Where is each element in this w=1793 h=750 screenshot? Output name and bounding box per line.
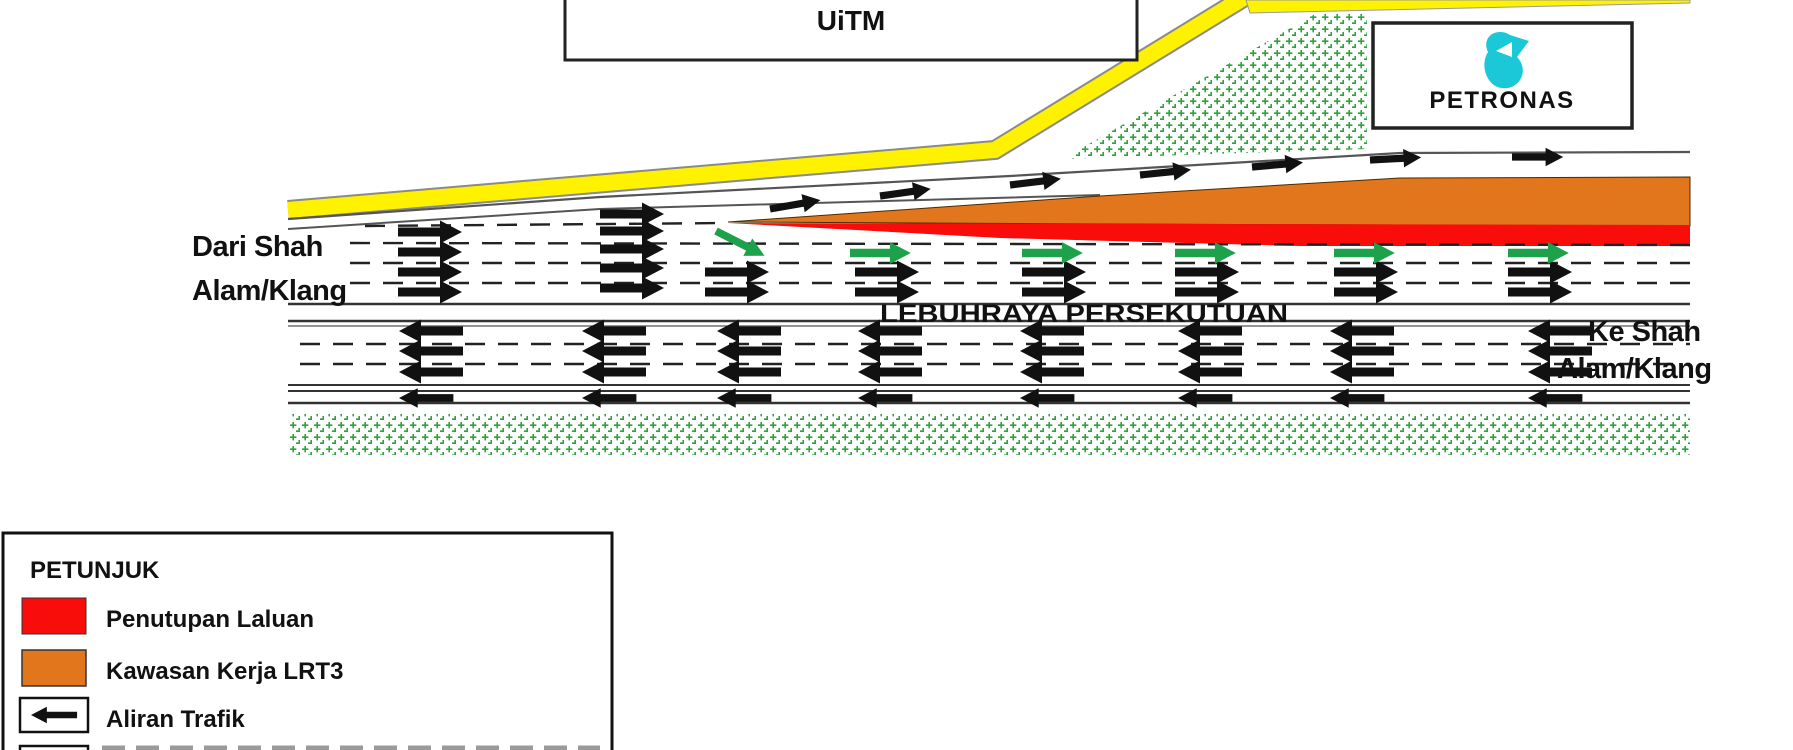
vegetation-area-bottom bbox=[288, 414, 1690, 455]
eastbound-lane-dashes bbox=[288, 243, 1690, 304]
ramp-flow-arrow bbox=[1139, 160, 1192, 184]
legend-swatch-partial bbox=[20, 746, 88, 750]
legend-swatch-workzone bbox=[22, 650, 86, 686]
ramp-flow-arrow bbox=[1370, 148, 1422, 169]
eastbound-flow-arrow bbox=[600, 203, 664, 226]
ramp-flow-arrow bbox=[1251, 153, 1304, 176]
westbound-carriageway bbox=[288, 321, 1690, 403]
petronas-landmark-box: PETRONAS bbox=[1373, 23, 1632, 128]
legend-swatch-closure bbox=[22, 598, 86, 634]
legend-label-workzone: Kawasan Kerja LRT3 bbox=[106, 658, 343, 685]
destination-label-line1: Ke Shah bbox=[1588, 316, 1701, 348]
traffic-management-diagram: UiTM PETRONAS Dari Shah Alam/Klang LEBUH… bbox=[0, 0, 1793, 750]
westbound-flow-arrow bbox=[717, 320, 781, 343]
lane-closure-red bbox=[728, 223, 1690, 246]
ramp-flow-arrow bbox=[1512, 148, 1563, 166]
diagram-canvas: UiTM PETRONAS Dari Shah Alam/Klang LEBUH… bbox=[0, 0, 1793, 750]
eastbound-flow-arrow bbox=[600, 238, 664, 261]
eastbound-flow-arrow bbox=[600, 277, 664, 300]
westbound-flow-arrow bbox=[1330, 320, 1394, 343]
destination-label-line2: Alam/Klang bbox=[1557, 353, 1712, 385]
origin-label-line2: Alam/Klang bbox=[192, 275, 347, 307]
petronas-label: PETRONAS bbox=[1429, 87, 1574, 114]
ramp-flow-arrow bbox=[768, 191, 822, 218]
yellow-road-top-sliver bbox=[1246, 0, 1690, 13]
eastbound-flow-arrow bbox=[398, 221, 462, 244]
uitm-label: UiTM bbox=[817, 5, 885, 36]
legend-title: PETUNJUK bbox=[30, 557, 160, 584]
uitm-landmark-box: UiTM bbox=[565, 0, 1137, 60]
highway-name-label: LEBUHRAYA PERSEKUTUAN bbox=[880, 300, 1288, 328]
westbound-flow-arrow bbox=[582, 320, 646, 343]
westbound-flow-arrow bbox=[1528, 320, 1592, 343]
diversion-arrow bbox=[850, 242, 911, 264]
westbound-flow-arrow bbox=[399, 320, 463, 343]
eastbound-flow-arrow bbox=[600, 257, 664, 280]
legend-label-closure: Penutupan Laluan bbox=[106, 606, 314, 633]
lane-dash-apex bbox=[365, 223, 728, 226]
legend-box: PETUNJUK Penutupan Laluan Kawasan Kerja … bbox=[3, 533, 612, 750]
legend-label-trafficflow: Aliran Trafik bbox=[106, 706, 245, 733]
diversion-arrow bbox=[1022, 242, 1083, 264]
origin-label-line1: Dari Shah bbox=[192, 231, 323, 263]
